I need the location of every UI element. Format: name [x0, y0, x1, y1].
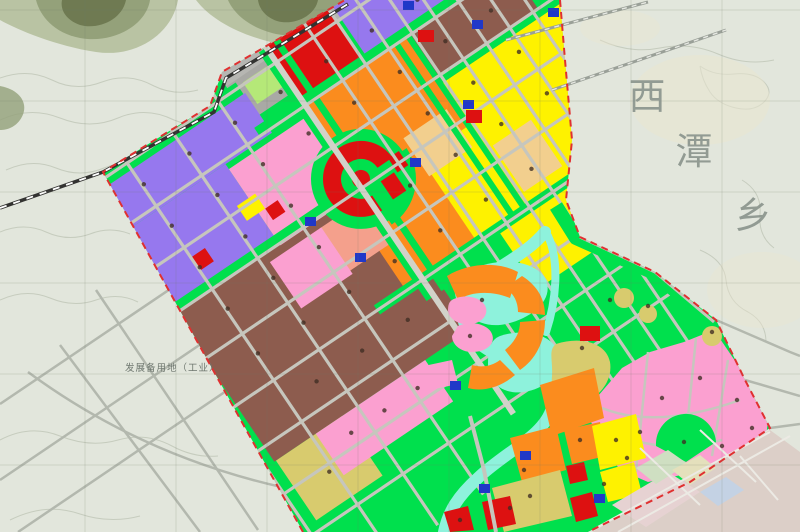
utility-parcel [520, 451, 531, 460]
red-parcel [418, 30, 434, 42]
red-parcel [466, 110, 482, 123]
parcel-code [735, 398, 739, 402]
parcel-code [638, 430, 642, 434]
reserve-land-label: 发展备用地（工业） [125, 362, 220, 374]
planning-map-viewport: 西 潭 乡 发展备用地（工业） [0, 0, 800, 532]
parcel-code [750, 426, 754, 430]
utility-parcel [472, 20, 483, 29]
parcel-code [646, 304, 650, 308]
township-label-char-2: 潭 [676, 132, 713, 173]
utility-parcel [403, 1, 414, 10]
parcel-code [660, 396, 664, 400]
parcel-code [528, 494, 532, 498]
terrain-patch [580, 10, 660, 46]
utility-parcel [594, 494, 605, 503]
parcel-code [625, 456, 629, 460]
red-parcel [482, 496, 516, 530]
parcel-code [682, 440, 686, 444]
parcel-code [614, 438, 618, 442]
parcel-code [580, 346, 584, 350]
parcel-code [578, 438, 582, 442]
parcel-code [480, 298, 484, 302]
parcel-code [458, 518, 462, 522]
khaki-parcel [702, 326, 722, 346]
utility-parcel [355, 253, 366, 262]
parcel-code [468, 334, 472, 338]
utility-parcel [479, 484, 490, 493]
utility-parcel [410, 158, 421, 167]
parcel-code [608, 298, 612, 302]
township-label-char-3: 乡 [735, 196, 772, 237]
planning-map: 西 潭 乡 发展备用地（工业） [0, 0, 800, 532]
utility-parcel [548, 8, 559, 17]
utility-parcel [305, 217, 316, 226]
red-parcel [580, 326, 600, 341]
parcel-code [522, 468, 526, 472]
parcel-code [602, 482, 606, 486]
parcel-code [698, 376, 702, 380]
parcel-code [508, 506, 512, 510]
parcel-code [710, 330, 714, 334]
utility-parcel [450, 381, 461, 390]
township-label-char-1: 西 [629, 77, 666, 118]
